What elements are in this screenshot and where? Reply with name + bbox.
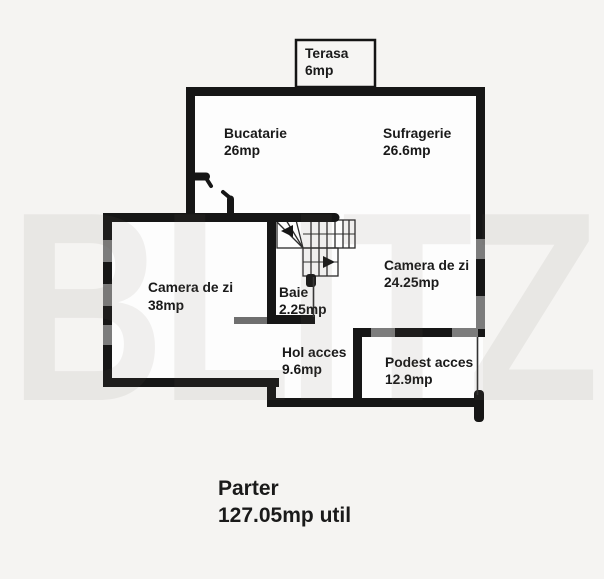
room-label-terasa-area: 6mp [305, 63, 333, 78]
room-label-sufragerie-name: Sufragerie [383, 126, 452, 141]
room-label-bucatarie-area: 26mp [224, 143, 260, 158]
floor-plan-drawing: Terasa 6mp Bucatarie 26mp Sufragerie 26.… [0, 0, 604, 579]
room-label-bucatarie-name: Bucatarie [224, 126, 287, 141]
room-label-terasa-name: Terasa [305, 46, 349, 61]
brand-watermark: BLITZ [10, 157, 596, 458]
floor-title-area: 127.05mp util [218, 504, 351, 527]
room-label-sufragerie-area: 26.6mp [383, 143, 431, 158]
wall-top [186, 87, 485, 96]
floor-title-name: Parter [218, 477, 279, 500]
floor-plan-canvas: Terasa 6mp Bucatarie 26mp Sufragerie 26.… [0, 0, 604, 579]
